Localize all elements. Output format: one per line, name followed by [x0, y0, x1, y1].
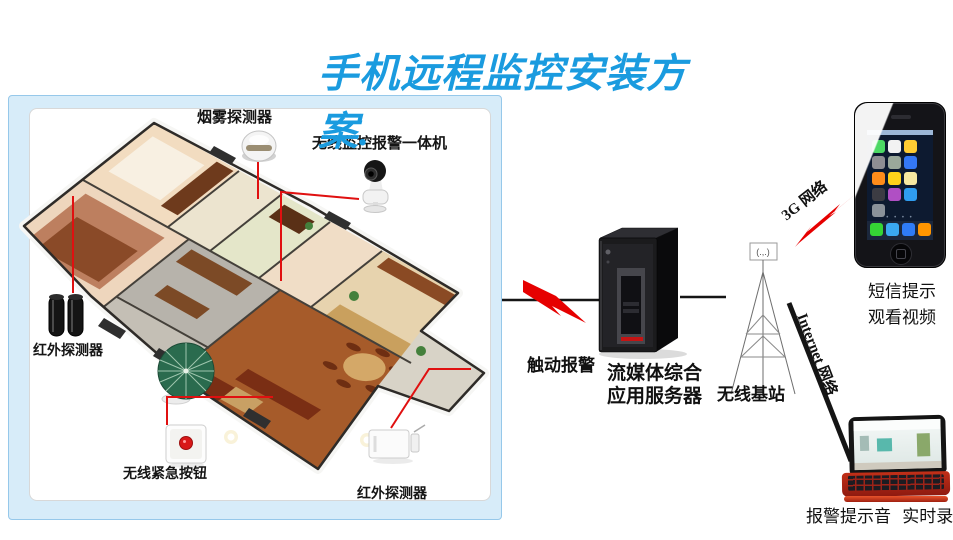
app-icon [872, 140, 885, 153]
phone-dock [867, 221, 933, 240]
laptop-display-detail [860, 435, 869, 451]
base-station-tower-icon [731, 243, 795, 394]
browser-app-icon [902, 223, 915, 236]
smartphone-icon: • • • • [854, 102, 946, 268]
laptop-caption: 报警提示音 实时录像 [806, 502, 953, 527]
app-icon [904, 156, 917, 169]
app-icon [888, 140, 901, 153]
laptop-screen [848, 415, 946, 475]
laptop-display [853, 419, 941, 470]
app-icon [872, 156, 885, 169]
app-icon [888, 172, 901, 185]
app-icon [872, 188, 885, 201]
phone-earpiece [891, 115, 911, 119]
server-label-line2: 应用服务器 [607, 385, 702, 408]
server-label-line1: 流媒体综合 [607, 362, 702, 385]
antenna-symbol: (.,.) [756, 247, 770, 257]
server-label: 流媒体综合 应用服务器 [607, 362, 702, 408]
phone-front-camera [881, 115, 885, 119]
base-station-label: 无线基站 [717, 380, 785, 405]
app-icon [904, 140, 917, 153]
music-app-icon [918, 223, 931, 236]
sms-alert-label: 短信提示 [868, 277, 936, 302]
laptop-keys [848, 474, 944, 491]
app-icon [888, 156, 901, 169]
laptop-display-detail [877, 438, 892, 452]
phone-screen: • • • • [867, 130, 933, 240]
watch-video-label: 观看视频 [868, 303, 936, 328]
app-icon [904, 172, 917, 185]
laptop-icon [842, 416, 950, 506]
laptop-display-wall [853, 419, 940, 431]
trigger-alarm-label: 触动报警 [527, 351, 595, 376]
app-icon [904, 188, 917, 201]
laptop-display-detail [916, 433, 930, 457]
phone-app-icon [870, 223, 883, 236]
lightning-bolt-icon [523, 280, 586, 323]
slide: 手机远程监控安装方案. [0, 0, 953, 540]
app-icon [872, 172, 885, 185]
mail-app-icon [886, 223, 899, 236]
app-icon [888, 188, 901, 201]
page-title: 手机远程监控安装方案. [318, 41, 738, 157]
laptop-display-floor [854, 461, 941, 471]
server-icon [599, 228, 687, 359]
laptop-keyboard [842, 471, 950, 497]
home-button [890, 243, 912, 265]
